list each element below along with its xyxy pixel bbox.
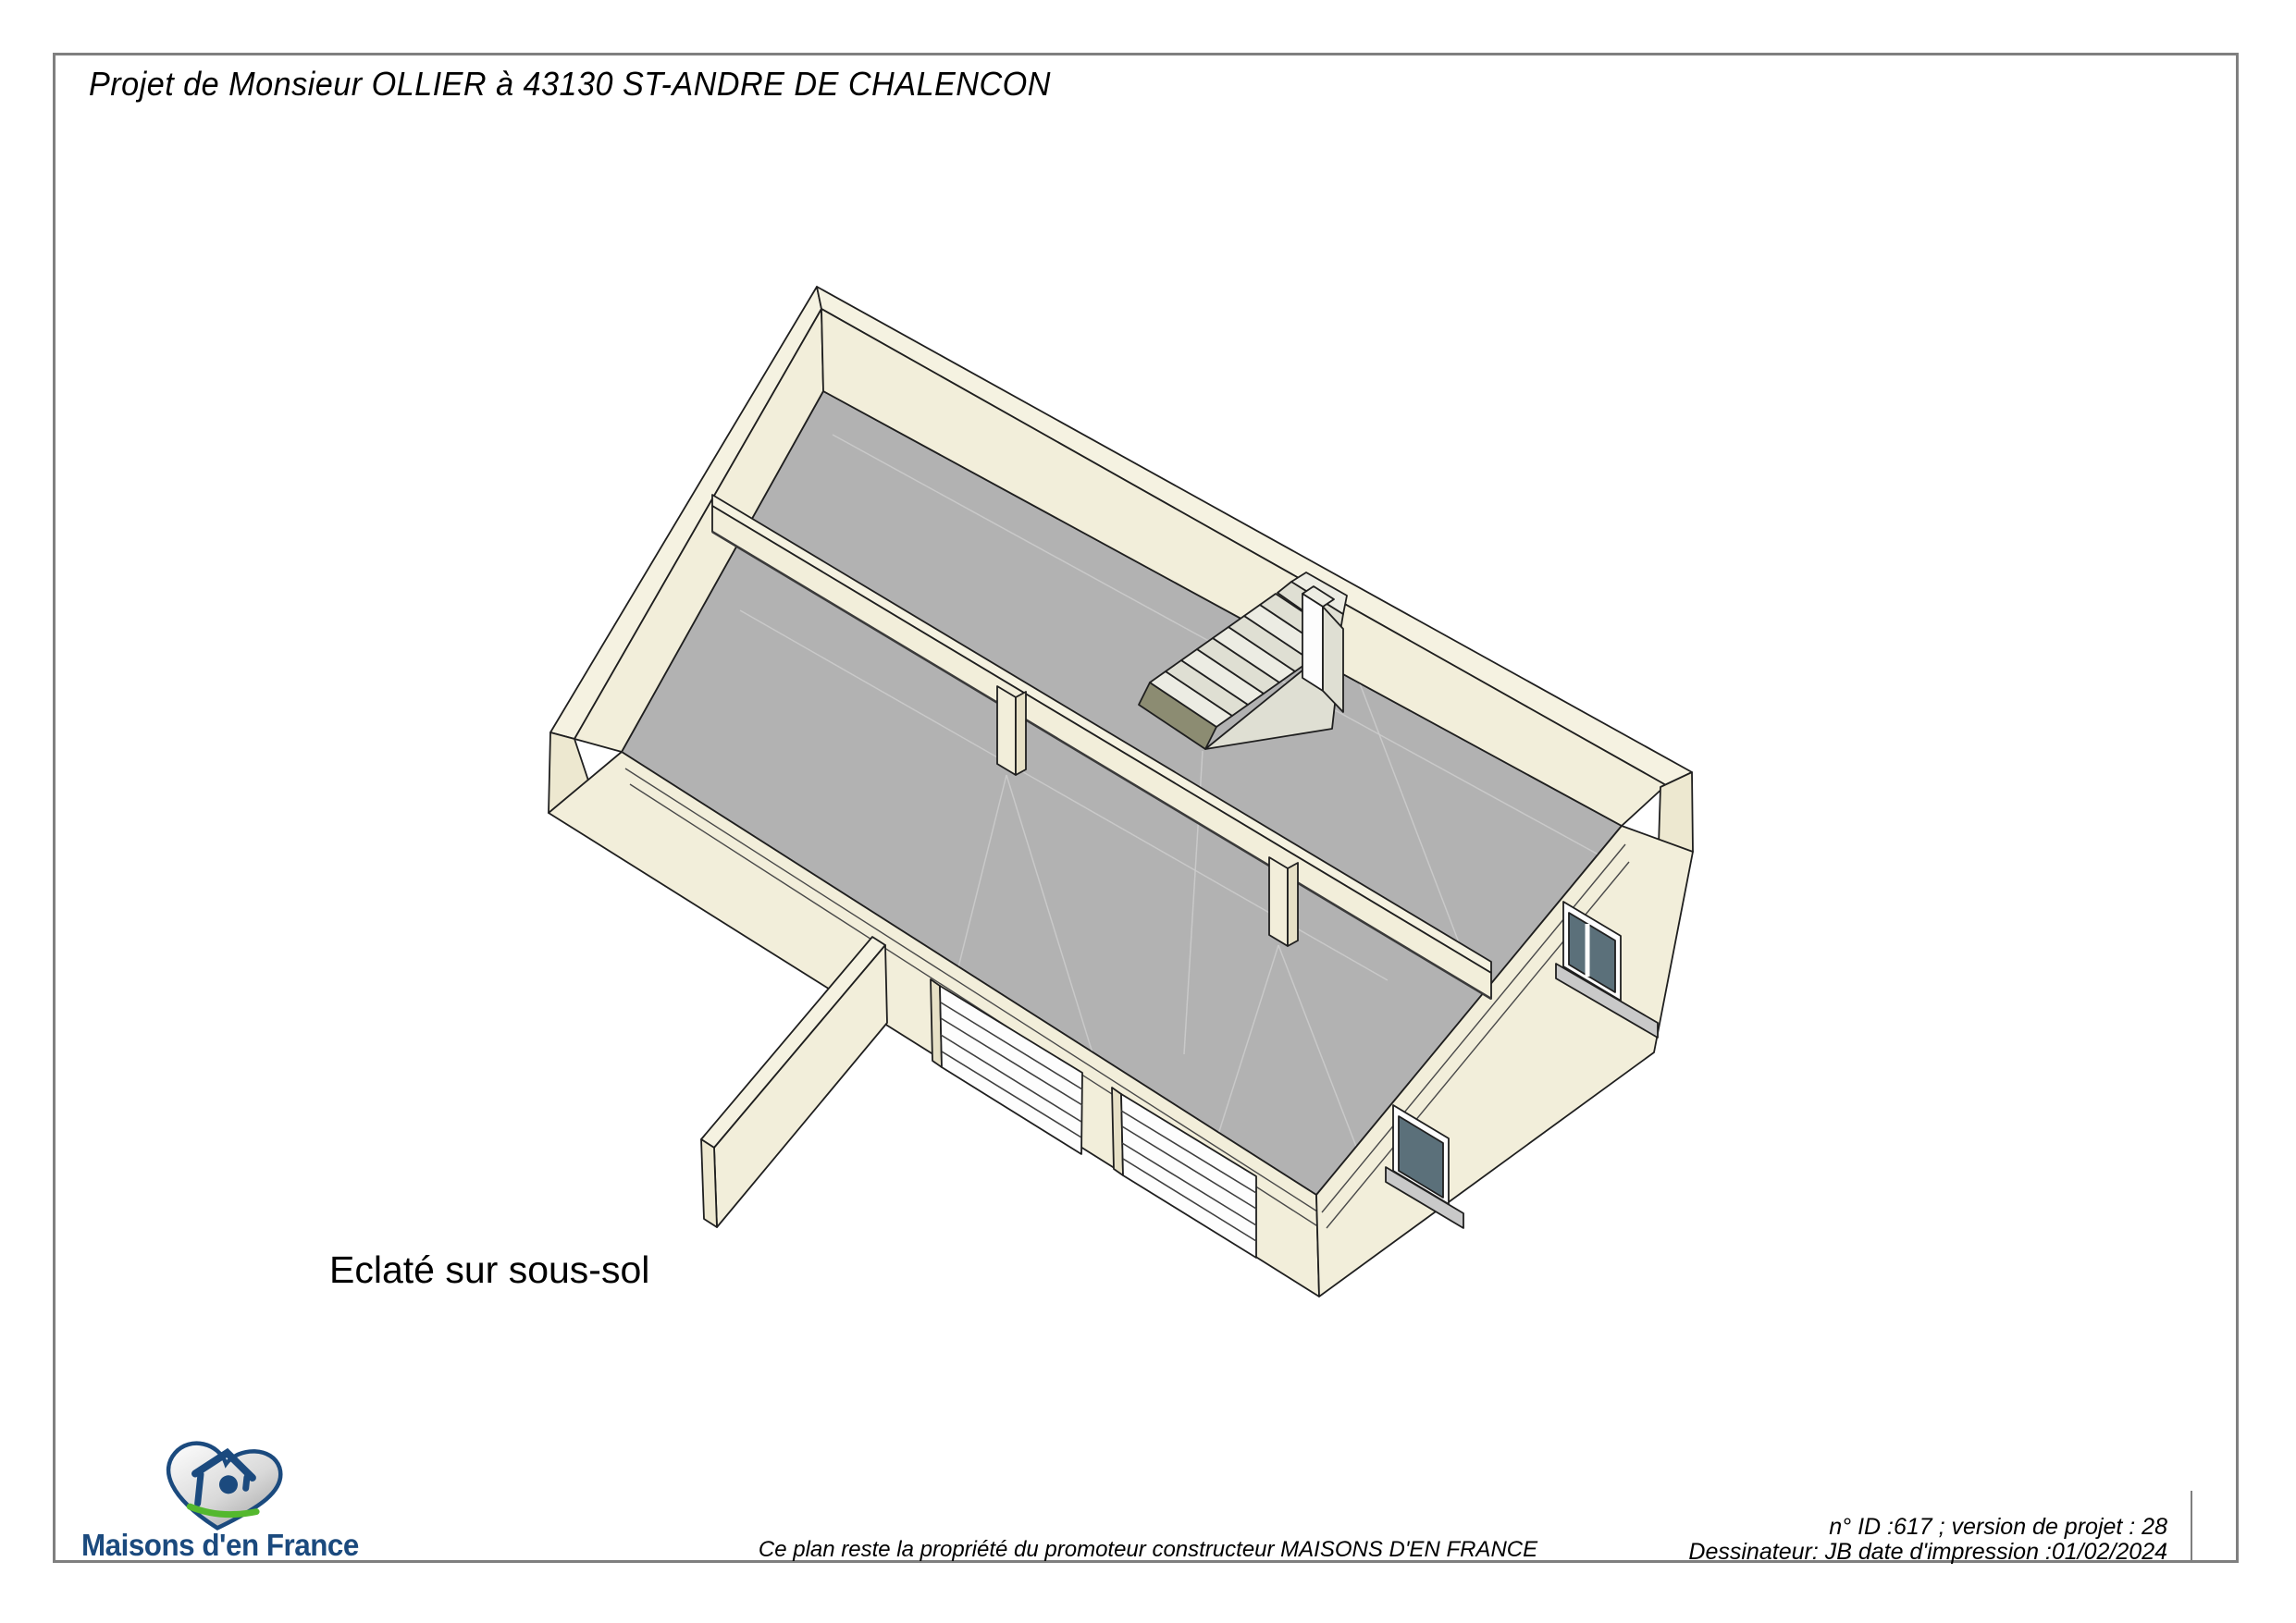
drawing-label: Eclaté sur sous-sol	[329, 1248, 649, 1292]
retaining-wall	[701, 937, 887, 1227]
title-block-divider	[2191, 1491, 2192, 1563]
brand-name: Maisons d'en France	[81, 1528, 359, 1563]
support-post-2	[1269, 857, 1298, 946]
support-post-1	[997, 686, 1026, 775]
project-id-version: n° ID :617 ; version de projet : 28	[1688, 1515, 2167, 1540]
plan-sheet: Projet de Monsieur OLLIER à 43130 ST-AND…	[0, 0, 2296, 1623]
title-block: n° ID :617 ; version de projet : 28 Dess…	[1688, 1515, 2167, 1565]
basement-axonometric-drawing	[0, 0, 2296, 1623]
drafter-print-date: Dessinateur: JB date d'impression :01/02…	[1688, 1540, 2167, 1565]
